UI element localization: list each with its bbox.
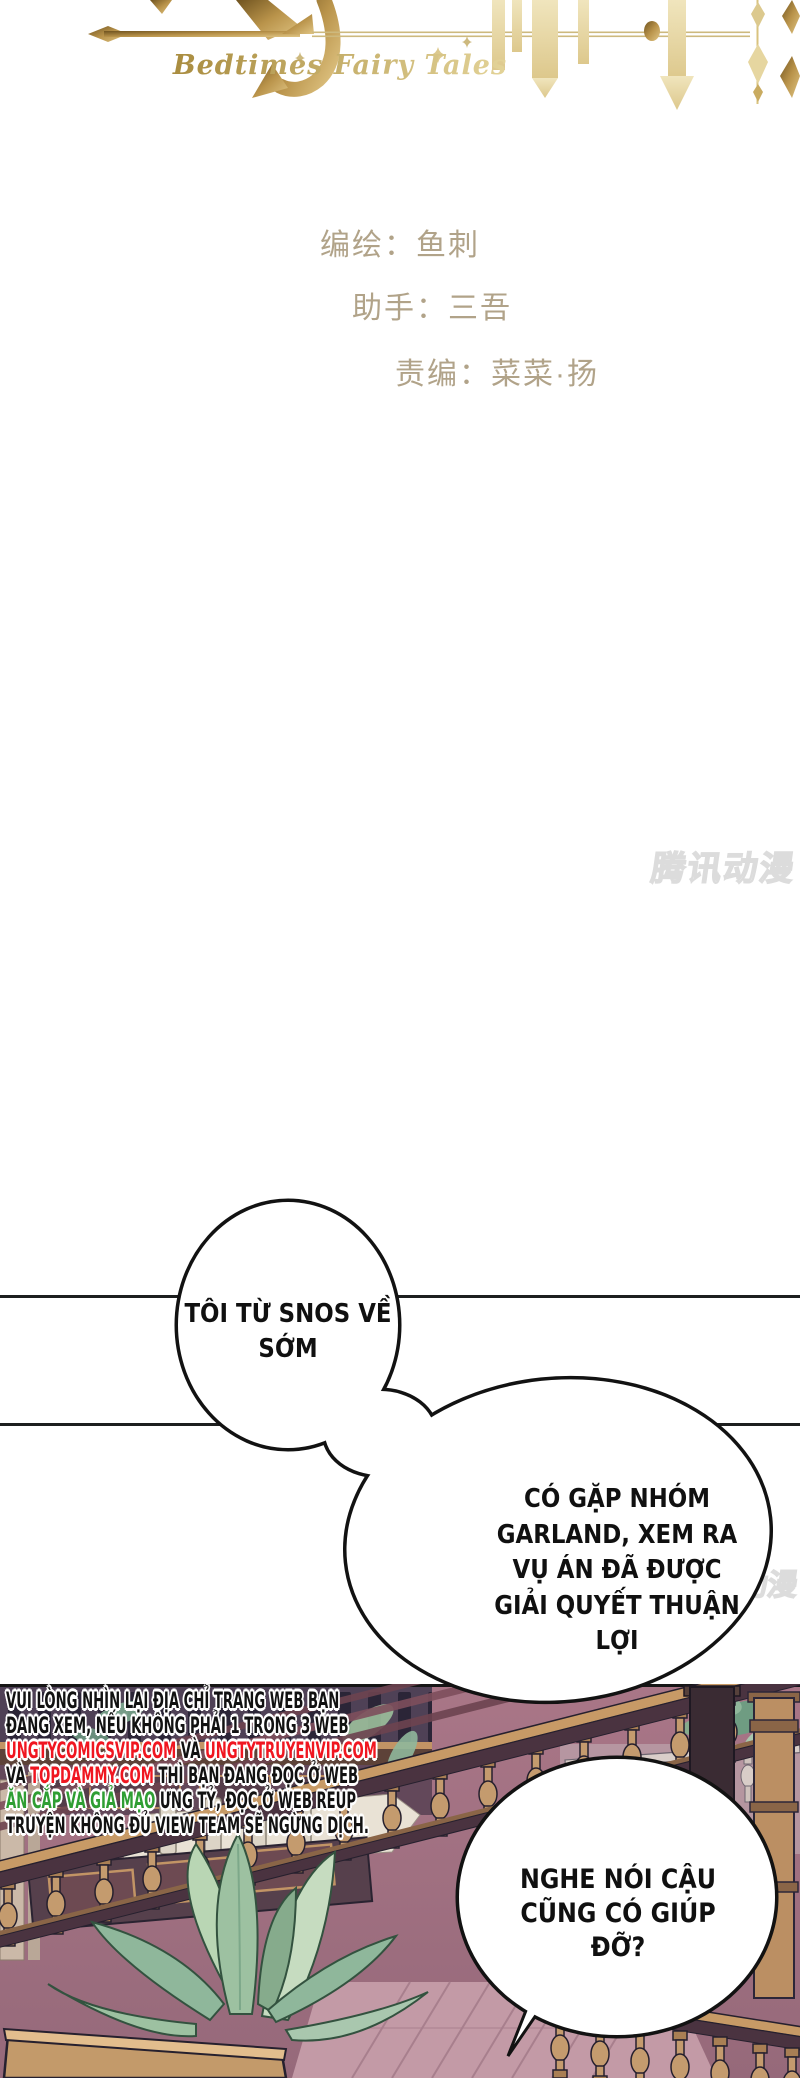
speech-line: SỚM xyxy=(182,1332,393,1367)
speech-line: GIẢI QUYẾT THUẬN xyxy=(467,1589,766,1625)
speech-line: CÓ GẶP NHÓM xyxy=(467,1482,766,1518)
logo-dot xyxy=(644,21,660,41)
speech-bubble-3-text: NGHE NÓI CẬU CŨNG CÓ GIÚP ĐỠ? xyxy=(481,1863,756,1965)
speech-bubble-2-text: CÓ GẶP NHÓM GARLAND, XEM RA VỤ ÁN ĐÃ ĐƯỢ… xyxy=(467,1482,766,1660)
speech-line: VỤ ÁN ĐÃ ĐƯỢC xyxy=(467,1553,766,1589)
credit-artist: 编绘：鱼刺 xyxy=(320,220,480,264)
credit-assistant: 助手：三吾 xyxy=(352,283,512,327)
logo-stroke xyxy=(150,0,172,14)
speech-line: ĐỠ? xyxy=(481,1931,756,1965)
logo-subtitle: Bedtimes Fairy Tales xyxy=(172,50,507,81)
series-logo: Bedtimes Fairy Tales xyxy=(0,0,800,118)
speech-line: GARLAND, XEM RA xyxy=(467,1518,766,1554)
speech-line: TÔI TỪ SNOS VỀ xyxy=(182,1297,393,1332)
speech-bubble-1-text: TÔI TỪ SNOS VỀ SỚM xyxy=(182,1297,393,1367)
speech-line: NGHE NÓI CẬU xyxy=(481,1863,756,1897)
speech-line: LỢI xyxy=(467,1624,766,1660)
logo-pale-glyphs xyxy=(492,0,694,110)
speech-line: CŨNG CÓ GIÚP xyxy=(481,1897,756,1931)
tencent-comics-watermark: 腾讯动漫 xyxy=(649,841,800,890)
comic-page: Bedtimes Fairy Tales 编绘：鱼刺 助手：三吾 责编：菜菜·扬… xyxy=(0,0,800,2078)
credit-editor: 责编：菜菜·扬 xyxy=(395,349,599,393)
logo-bar xyxy=(104,31,300,37)
